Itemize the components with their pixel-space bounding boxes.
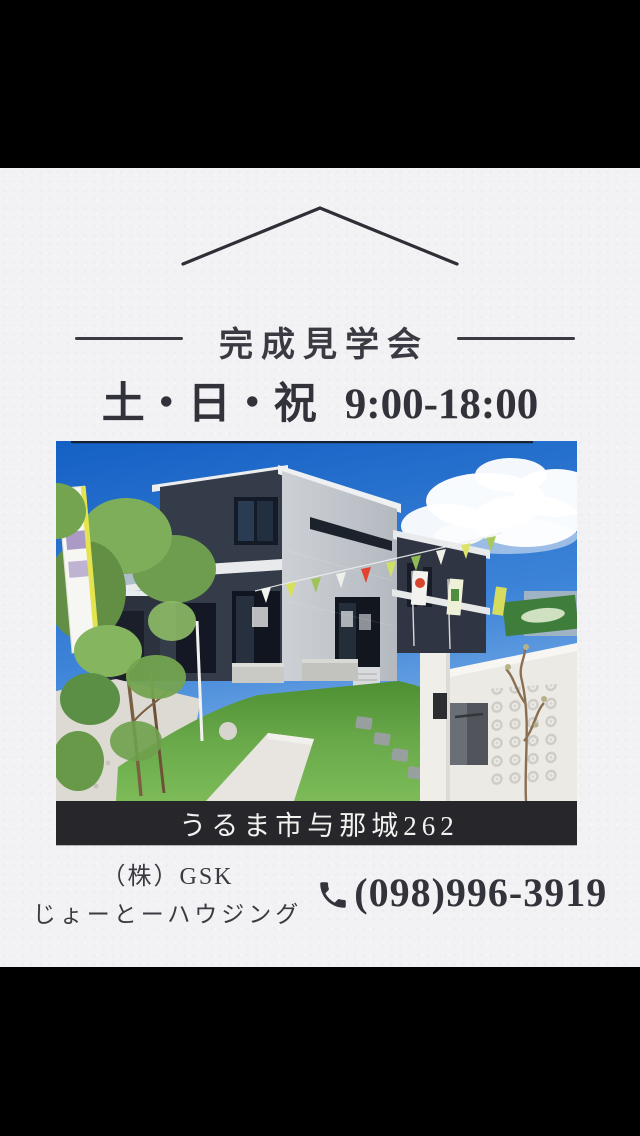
- phone-receiver-icon: [316, 878, 350, 912]
- letterbox-top: [0, 0, 640, 168]
- flyer-page: 完成見学会 土・日・祝 9:00-18:00: [0, 0, 640, 1136]
- schedule-line: 土・日・祝 9:00-18:00: [0, 369, 640, 431]
- phone-number: (098)996-3919: [354, 869, 607, 916]
- address-text: うるま市与那城262: [174, 804, 459, 843]
- company-line2: じょーとーハウジング: [33, 895, 303, 929]
- letterbox-bottom: [0, 967, 640, 1136]
- footer: （株）GSK じょーとーハウジング (098)996-3919: [0, 852, 640, 932]
- house-photo: 新: [56, 441, 577, 801]
- flyer-body: 完成見学会 土・日・祝 9:00-18:00: [0, 168, 640, 967]
- schedule-time: 9:00-18:00: [345, 380, 538, 429]
- event-title: 完成見学会: [0, 317, 640, 366]
- front-wall: [420, 643, 577, 801]
- phone-group: (098)996-3919: [316, 869, 607, 916]
- schedule-days: 土・日・祝: [102, 369, 317, 431]
- company-line1: （株）GSK: [102, 856, 234, 891]
- address-bar: うるま市与那城262: [56, 801, 577, 845]
- company-name: （株）GSK じょーとーハウジング: [33, 856, 303, 929]
- photo-top-edge: [71, 441, 533, 443]
